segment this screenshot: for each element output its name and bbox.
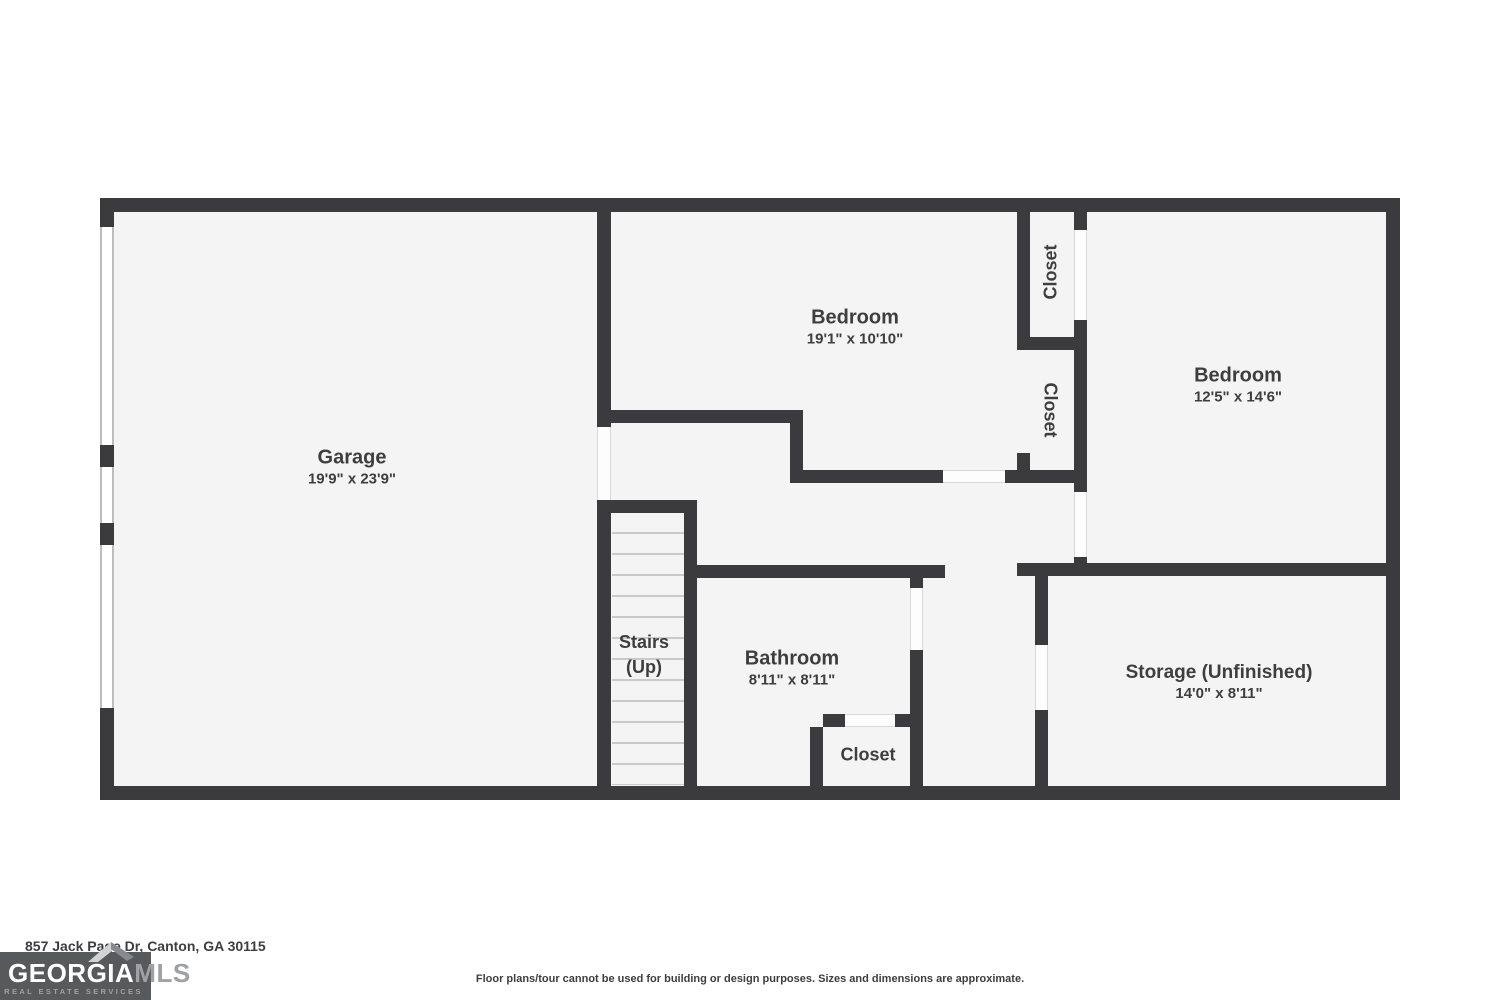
room-name: Closet [1040,382,1061,437]
wall-outer-bottom [100,786,1400,800]
wall-stairs-right [684,500,697,786]
wall-bathcloset-top [823,714,845,727]
room-name: Bedroom [1194,364,1282,387]
room-name: Closet [840,745,895,766]
wall-outer-left [100,198,114,227]
room-name: Closet [1041,244,1062,299]
room-label-garage: Garage 19'9" x 23'9" [308,446,396,489]
wall-outer-left [100,445,114,467]
door-opening-bathcloset [845,714,895,727]
window-opening [100,467,114,523]
wall-storage-left [1035,576,1048,645]
logo-tagline: REAL ESTATE SERVICES [0,987,147,996]
door-opening-landing [597,427,611,500]
door-opening-bedroom2 [1074,492,1087,557]
room-label-storage: Storage (Unfinished) 14'0" x 8'11" [1126,662,1313,704]
room-name: Bathroom [745,647,839,670]
stairs-line2: (Up) [619,655,669,680]
wall-outer-left [100,708,114,800]
wall-bathroom-right [910,650,923,786]
floor-plan: Garage 19'9" x 23'9" Bedroom 19'1" x 10'… [0,0,1500,1000]
wall-closet-east [1074,320,1087,492]
disclaimer-text: Floor plans/tour cannot be used for buil… [0,973,1500,985]
wall-bedroom1-south [803,470,943,483]
room-dims: 8'11" x 8'11" [745,670,839,690]
wall-closet-east [1074,212,1087,230]
room-label-bedroom2: Bedroom 12'5" x 14'6" [1194,364,1282,407]
wall-garage-bedroom [597,212,611,427]
wall-outer-left [100,523,114,545]
wall-closet2-stub [1017,453,1030,470]
room-dims: 19'9" x 23'9" [308,469,396,489]
wall-bathroom-right [910,578,923,588]
wall-outer-right [1386,198,1400,800]
room-label-bathroom: Bathroom 8'11" x 8'11" [745,647,839,690]
wall-garage-stairs [597,500,611,786]
room-name: Bedroom [807,306,903,329]
stairs-line1: Stairs [619,630,669,655]
wall-outer-top [100,198,1400,212]
wall-bedroom1-south-west [597,410,803,423]
logo-brand-primary: GEORGIA [8,958,134,989]
wall-bedroom1-step [790,423,803,483]
georgia-mls-logo: GEORGIAMLS REAL ESTATE SERVICES [0,952,151,1000]
window-opening [100,545,114,708]
room-name: Garage [308,446,396,469]
wall-bathcloset-top [895,714,910,727]
room-label-stairs: Stairs (Up) [619,630,669,680]
wall-bathcloset-left [810,727,823,786]
wall-bathroom-top [697,565,945,578]
door-opening-closet1 [1074,230,1087,320]
room-label-closet-bath: Closet [840,745,895,766]
wall-storage-top [1017,563,1386,576]
room-dims: 12'5" x 14'6" [1194,387,1282,407]
wall-storage-left [1035,710,1048,786]
room-label-closet-top: Closet [1041,244,1062,299]
room-label-bedroom1: Bedroom 19'1" x 10'10" [807,306,903,349]
room-dims: 19'1" x 10'10" [807,329,903,349]
room-label-closet-mid: Closet [1040,382,1061,437]
door-opening-bedroom1 [943,470,1005,483]
door-opening-storage [1035,645,1048,710]
floor-area [100,198,1400,800]
room-dims: 14'0" x 8'11" [1126,684,1313,704]
wall-closet-west [1017,212,1030,350]
logo-brand-secondary: MLS [134,958,190,989]
room-name: Storage (Unfinished) [1126,662,1313,684]
window-opening [100,227,114,445]
door-opening-bathroom [910,588,923,650]
